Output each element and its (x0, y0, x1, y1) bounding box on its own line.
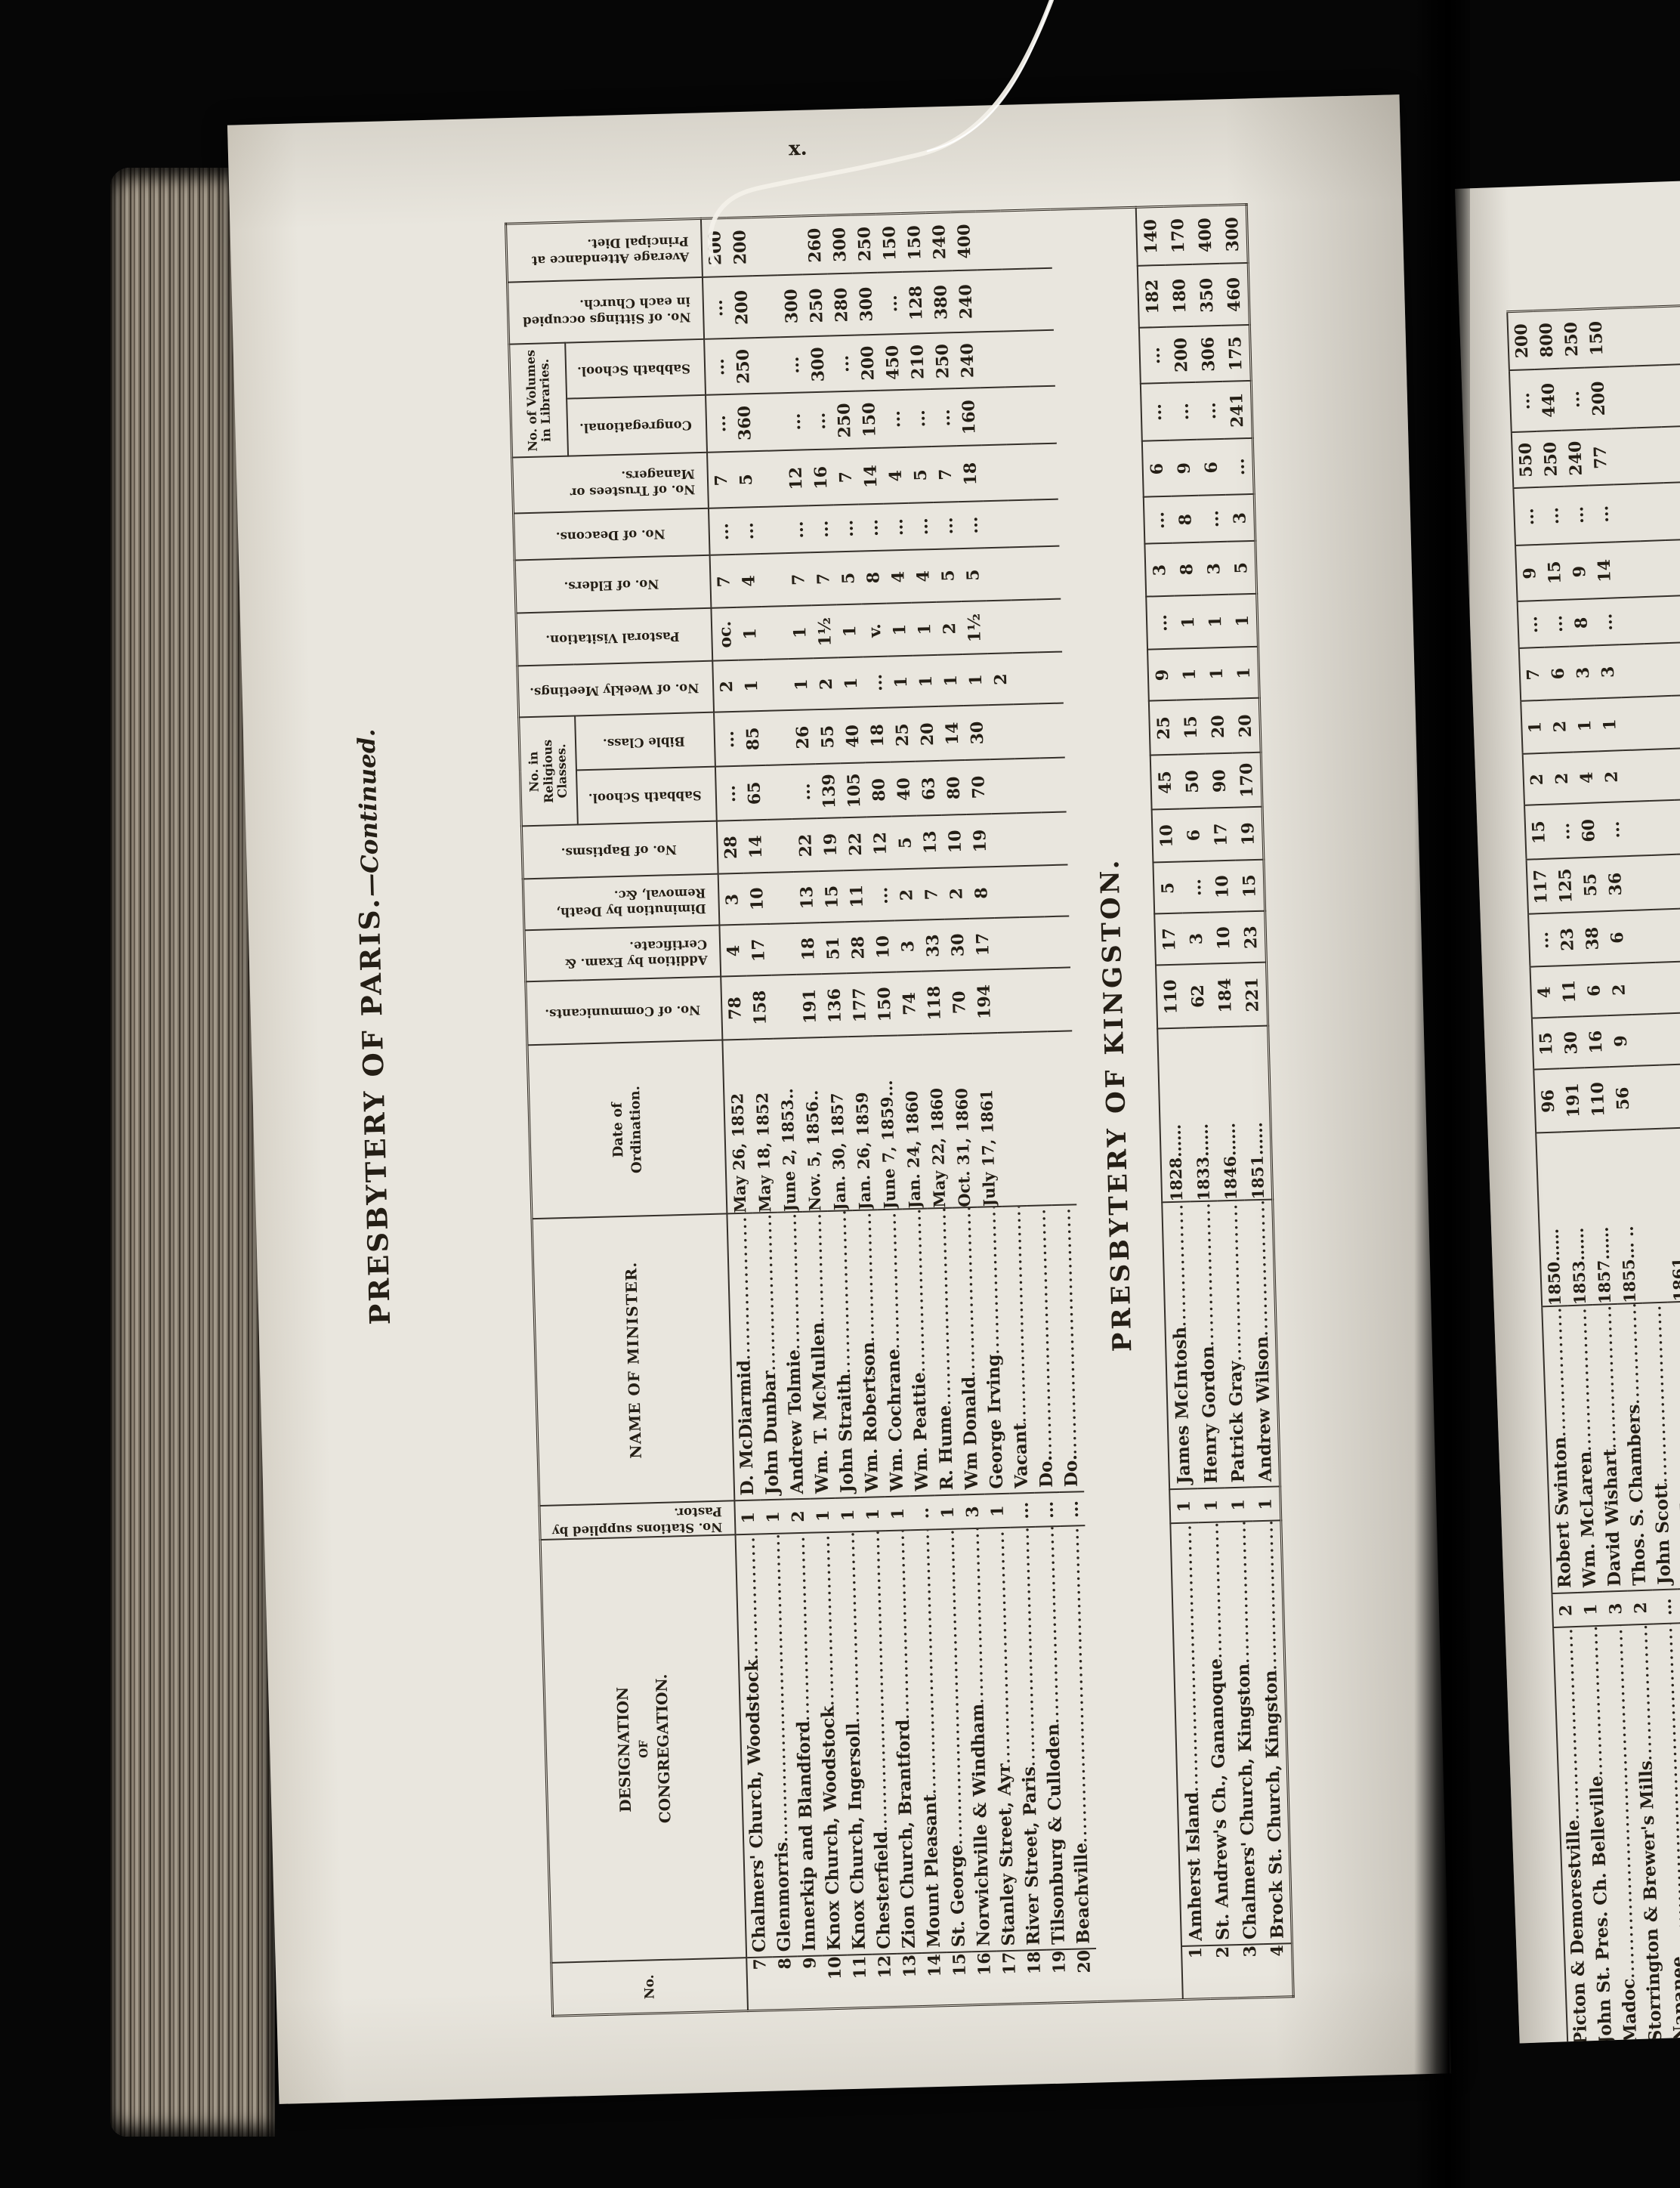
cell-diminution: 7 (919, 868, 945, 920)
cell-trustees: 16 (808, 450, 834, 506)
cell-avg_attendance: 260 (801, 215, 828, 275)
cell-avg_attendance: 250 (1558, 309, 1585, 369)
column-header-weekly: No. of Weekly Meetings. (517, 661, 714, 718)
congregation-name-text: Glenmorris (771, 1842, 795, 1957)
cell-addition: 30 (1558, 1017, 1584, 1069)
congregation-name-text: Stanley Street, Ayr (994, 1763, 1019, 1951)
dotted-leader: ........................................… (1634, 1625, 1655, 1760)
cell-religious_ss (1015, 759, 1042, 814)
cell-baptisms (1629, 910, 1655, 963)
cell-stations: ... (1009, 1493, 1035, 1528)
cell-visitation: 1 (1174, 595, 1203, 649)
cell-religious_bc: 15 (1177, 700, 1206, 755)
cell-sittings: 250 (803, 274, 829, 337)
cell-stations: 1 (810, 1498, 835, 1533)
cell-diminution (993, 867, 1020, 919)
cell-trustees: 9 (1566, 543, 1593, 600)
cell-volumes_ss (1612, 428, 1639, 485)
cell-deacons: ... (809, 505, 835, 553)
column-header-religious-ss: Sabbath School. (576, 767, 717, 825)
cell-stations: ... (1034, 1493, 1060, 1528)
cell-addition (1657, 1013, 1680, 1065)
minister-name-text: George Irving (983, 1354, 1007, 1494)
column-header-label-avg_attendance: Average Attendance at Principal Diet. (516, 233, 689, 268)
cell-weekly: 1 (888, 656, 914, 708)
cell-visitation: ... (1146, 596, 1175, 650)
dotted-leader: ........................................… (891, 1531, 913, 1720)
cell-volumes_ss (1004, 331, 1030, 388)
cell-religious_bc: 25 (889, 707, 916, 762)
cell-volumes_cong: ... (931, 389, 957, 447)
dotted-leader: ........................................… (907, 1210, 928, 1372)
cell-visitation: 2 (936, 602, 962, 656)
cell-volumes_cong: ... (881, 390, 907, 448)
dotted-leader: ........................................… (857, 1211, 878, 1342)
cell-visitation: 1 (1571, 699, 1598, 753)
cell-volumes_cong: ... (1196, 382, 1224, 440)
cell-volumes_ss (1662, 426, 1680, 483)
cell-religious_bc: 30 (964, 706, 990, 761)
cell-stations: 1 (1169, 1489, 1198, 1524)
dotted-leader: ........................................… (1232, 1522, 1252, 1664)
cell-diminution: 2 (943, 867, 970, 919)
cell-baptisms: 38 (1579, 912, 1605, 966)
cell-addition: 23 (1237, 911, 1266, 963)
cell-trustees: 9 (1170, 440, 1199, 496)
column-header-deacons: No. of Deacons. (514, 508, 710, 561)
column-header-label-volumes-ss: Sabbath School. (577, 360, 690, 379)
dotted-leader: ........................................… (1007, 1207, 1029, 1423)
cell-deacons: ... (1199, 495, 1228, 542)
cell-religious_bc: 14 (939, 706, 965, 761)
dotted-leader: ........................................… (1057, 1206, 1080, 1455)
cell-addition: 18 (795, 923, 821, 975)
cell-avg_attendance: 300 (826, 215, 853, 274)
cell-diminution: 2 (894, 869, 920, 921)
dotted-leader: ........................................… (1178, 1524, 1201, 1792)
dotted-leader: ........................................… (1623, 1304, 1643, 1405)
cell-deacons: ... (709, 508, 736, 555)
cell-volumes_ss (979, 332, 1005, 388)
minister-name-text: R. Hume (934, 1405, 957, 1495)
cell-avg_attendance (777, 216, 803, 276)
rotated-table-area-right: 5Picton & Demorestville.................… (1455, 292, 1680, 2044)
dotted-leader: ........................................… (733, 1214, 753, 1360)
cell-avg_attendance (1001, 210, 1027, 270)
cell-sittings (977, 270, 1004, 332)
cell-volumes_cong: ... (1589, 485, 1616, 543)
dotted-leader: ........................................… (1197, 1202, 1217, 1346)
column-header-avg_attendance: Average Attendance at Principal Diet. (506, 218, 703, 283)
dotted-leader: ........................................… (990, 1528, 1013, 1763)
cell-religious_bc (1014, 704, 1040, 759)
cell-addition (1632, 1014, 1659, 1066)
dotted-leader: ........................................… (1169, 1203, 1189, 1327)
cell-volumes_ss (755, 338, 781, 394)
cell-communicants: 191 (796, 975, 823, 1039)
cell-diminution (1630, 963, 1657, 1015)
cell-religious_ss: 63 (916, 761, 942, 816)
minister-name-text: Wm. McLaren (1575, 1451, 1600, 1592)
dotted-leader: ........................................… (1032, 1207, 1055, 1456)
cell-diminution: 8 (968, 867, 995, 919)
cell-avg_attendance (752, 217, 778, 277)
congregation-name-text: Amherst Island (1181, 1791, 1206, 1945)
cell-deacons: ... (884, 503, 910, 551)
cell-diminution: 4 (1530, 966, 1558, 1018)
cell-religious_bc: 85 (740, 711, 766, 766)
cell-baptisms: 10 (942, 814, 968, 868)
cell-elders (984, 548, 1011, 601)
cell-visitation (986, 601, 1012, 654)
cell-volumes_cong: 160 (956, 388, 982, 447)
cell-deacons: ... (1543, 600, 1570, 647)
cell-avg_attendance: 240 (926, 212, 953, 272)
cell-volumes_ss: 240 (954, 332, 981, 389)
cell-religious_ss: 105 (841, 763, 867, 818)
cell-avg_attendance: 140 (1136, 206, 1166, 266)
cell-deacons: ... (1144, 496, 1173, 544)
cell-volumes_ss: 306 (1194, 326, 1223, 382)
cell-volumes_ss: 250 (730, 338, 756, 395)
cell-sittings: 180 (1166, 264, 1194, 327)
cell-religious_bc: 60 (1575, 803, 1601, 858)
cell-deacons: ... (784, 506, 811, 554)
minister-name-text: Vacant (1010, 1423, 1032, 1494)
minister-name-text: Wm Donald (959, 1376, 982, 1494)
congregation-name-text: Mount Pleasant (920, 1794, 944, 1952)
cell-deacons: 8 (1172, 496, 1200, 543)
cell-religious_ss: 70 (965, 760, 992, 815)
cell-date: 1846...... (1212, 1027, 1244, 1201)
column-header-elders: No. of Elders. (514, 555, 711, 613)
cell-stations: 1 (760, 1500, 786, 1534)
cell-baptisms (1042, 812, 1068, 866)
cell-trustees: 7 (832, 449, 859, 505)
cell-religious_bc (1625, 801, 1651, 856)
column-header-volumes-ss: Sabbath School. (565, 339, 706, 399)
cell-trustees: 6 (1197, 439, 1226, 496)
minister-name-flex: Henry Gordon............................… (1194, 1202, 1221, 1488)
cell-volumes_cong: ... (806, 392, 832, 450)
cell-avg_attendance (1607, 307, 1635, 367)
column-header-label-addition: Addition by Exam. & Certificate. (535, 936, 708, 972)
cell-communicants: 74 (896, 972, 922, 1036)
minister-name-text: John Straith (834, 1374, 857, 1498)
cell-weekly: 2 (987, 654, 1014, 706)
cell-no: 20 (1071, 1948, 1098, 2002)
cell-religious_ss: 55 (1577, 858, 1604, 913)
congregation-name-text: Norwichville & Windham (968, 1703, 995, 1951)
cell-trustees (1007, 444, 1033, 501)
cell-deacons: ... (909, 502, 935, 550)
cell-visitation: 1 (737, 607, 763, 660)
rotated-table-area-left: PRESBYTERY OF PARIS.—Continued. No.DESIG… (325, 204, 1354, 2022)
cell-diminution: 15 (819, 871, 845, 923)
cell-volumes_cong (1614, 484, 1641, 542)
column-header-trustees: No. of Trustees or Managers. (512, 453, 709, 514)
cell-addition: 30 (944, 919, 971, 971)
column-header-label-deacons: No. of Deacons. (555, 525, 665, 543)
column-header-stations: No. Stations supplied by Pastor. (539, 1501, 736, 1541)
minister-name-text: Andrew Tolmie (783, 1349, 808, 1499)
cell-elders (1009, 547, 1036, 601)
cell-communicants (996, 969, 1022, 1034)
cell-volumes_cong: 150 (856, 391, 882, 449)
cell-addition (770, 923, 796, 975)
cell-avg_attendance (1026, 209, 1052, 269)
cell-communicants: 158 (746, 975, 773, 1040)
minister-name-text: Wm. T. McMullen (808, 1322, 832, 1498)
cell-avg_attendance: 150 (876, 213, 903, 273)
cell-sittings: ... (1560, 368, 1587, 431)
cell-religious_bc (1650, 800, 1676, 855)
cell-weekly: 2 (1549, 753, 1575, 805)
cell-volumes_ss (1029, 330, 1055, 387)
minister-name-text: Wm. Peattie (909, 1372, 932, 1496)
cell-volumes_cong: ... (781, 393, 808, 451)
cell-weekly: 1 (913, 655, 939, 707)
cell-stations: 1 (860, 1497, 885, 1532)
cell-religious_ss: 90 (1206, 753, 1234, 808)
cell-stations: 1 (885, 1497, 910, 1531)
cell-elders (761, 554, 787, 607)
column-header-diminution: Diminution by Death, Removal, &c. (523, 874, 719, 931)
cell-addition: 3 (894, 920, 921, 972)
right-table-mount: 5Picton & Demorestville.................… (1506, 307, 1680, 2044)
column-header-religious-bc: Bible Class. (575, 712, 715, 771)
cell-volumes_ss: 550 (1512, 431, 1539, 488)
cell-elders: 3 (1144, 543, 1174, 597)
cell-deacons (1008, 500, 1035, 548)
cell-addition: 17 (1154, 913, 1184, 966)
cell-communicants (1659, 1065, 1680, 1129)
cell-communicants: 110 (1156, 965, 1185, 1029)
cell-no: 2 (1209, 1945, 1238, 1999)
cell-communicants: 221 (1238, 963, 1268, 1027)
cell-religious_ss: 117 (1527, 859, 1554, 914)
table-body: 7Chalmers' Church, Woodstock............… (701, 204, 1293, 2010)
cell-avg_attendance: 250 (851, 214, 878, 273)
cell-elders: 8 (860, 551, 887, 604)
cell-diminution (1018, 866, 1045, 918)
cell-sittings (753, 276, 780, 338)
cell-weekly (1648, 749, 1675, 801)
cell-sittings: 350 (1193, 264, 1221, 326)
column-header-label-elders: No. of Elders. (564, 576, 659, 594)
cell-volumes_cong: ... (706, 394, 733, 453)
cell-no: 11 (847, 1955, 873, 2008)
cell-avg_attendance: 170 (1164, 206, 1193, 265)
cell-diminution: 5 (1153, 862, 1182, 914)
cell-volumes_cong (1030, 386, 1057, 444)
cell-religious_ss: 80 (940, 760, 967, 815)
cell-trustees: 14 (857, 448, 884, 505)
cell-volumes_cong (1638, 484, 1666, 542)
cell-diminution: 3 (718, 873, 746, 926)
cell-diminution: ... (1181, 861, 1209, 913)
cell-addition: 17 (969, 919, 996, 971)
dotted-leader: ........................................… (1040, 1528, 1062, 1724)
cell-stations: 1 (934, 1495, 960, 1530)
cell-date: 1828...... (1157, 1028, 1190, 1203)
right-page: 5Picton & Demorestville.................… (1455, 178, 1680, 2044)
congregation-name-text: St. Andrew's Ch., Gananoque (1206, 1658, 1234, 1945)
dotted-leader: ........................................… (1598, 1306, 1620, 1449)
cell-deacons (1643, 597, 1669, 644)
minister-name-text: Wm. Robertson (858, 1342, 882, 1497)
cell-stations: 1 (1252, 1487, 1281, 1522)
column-header-baptisms: No. of Baptisms. (521, 821, 718, 879)
cell-religious_ss: 50 (1178, 754, 1207, 809)
cell-avg_attendance: 400 (1191, 205, 1220, 264)
cell-weekly: 2 (712, 660, 740, 712)
cell-volumes_ss: 77 (1587, 429, 1614, 486)
cell-trustees: 7 (707, 452, 734, 508)
congregation-name-text: Tilsonburg & Culloden (1042, 1723, 1069, 1949)
dotted-leader: ........................................… (1205, 1523, 1225, 1658)
cell-visitation (1011, 600, 1037, 654)
cell-weekly: 1 (1230, 647, 1259, 699)
cell-religious_bc: ... (1550, 804, 1577, 859)
cell-trustees (982, 445, 1008, 502)
cell-diminution: 13 (794, 872, 820, 924)
cell-trustees (1666, 539, 1680, 596)
congregation-name-text: Innerkip and Blandford (793, 1720, 820, 1955)
cell-volumes_ss: ... (829, 335, 856, 392)
book-scan-photo: x. PRESBYTERY OF PARIS.—Continued. No.DE… (0, 0, 1680, 2188)
cell-baptisms: 19 (817, 818, 844, 872)
cell-diminution: 11 (844, 870, 870, 922)
cell-stations: ... (1652, 1590, 1678, 1624)
cell-addition: 17 (745, 924, 771, 976)
cell-stations: 4 (1677, 1589, 1680, 1624)
minister-name-text: Do. (1061, 1454, 1082, 1492)
cell-stations: 1 (984, 1494, 1010, 1528)
column-header-label-diminution: Diminution by Death, Removal, &c. (533, 885, 706, 920)
cell-elders: 3 (1200, 542, 1228, 595)
cell-baptisms (992, 814, 1018, 867)
cell-communicants (771, 975, 798, 1039)
cell-religious_bc: 18 (864, 708, 891, 763)
cell-diminution: 15 (1235, 860, 1265, 912)
left-table-mount: No.DESIGNATIONOFCONGREGATION.No. Station… (505, 206, 1295, 2017)
cell-volumes_cong: ... (1539, 487, 1566, 545)
cell-diminution: 11 (1555, 966, 1582, 1018)
cell-baptisms: 23 (1554, 913, 1580, 966)
cell-no: 12 (872, 1954, 898, 2007)
column-header-visitation: Pastoral Visitation. (516, 608, 712, 666)
cell-volumes_cong: 360 (731, 394, 758, 453)
cell-volumes_cong: ... (1513, 487, 1541, 545)
cell-deacons (1618, 598, 1644, 645)
cell-trustees: 5 (733, 452, 759, 508)
cell-volumes_cong: ... (1141, 383, 1170, 441)
cell-communicants: 118 (921, 971, 947, 1035)
cell-visitation (761, 607, 788, 660)
cell-avg_attendance: 150 (1583, 308, 1610, 368)
congregation-name-text: Napanee (1667, 1956, 1680, 2044)
dotted-leader: ........................................… (882, 1210, 903, 1349)
cell-baptisms: 22 (842, 817, 869, 871)
cell-weekly: 1 (1175, 648, 1204, 700)
cell-visitation: v. (861, 604, 888, 657)
cell-visitation: 1 (1521, 700, 1548, 754)
cell-deacons: 3 (1226, 494, 1255, 542)
cell-religious_bc (764, 711, 791, 766)
cell-religious_bc (1039, 703, 1065, 759)
dotted-leader: ........................................… (817, 1533, 838, 1706)
cell-avg_attendance: 800 (1533, 310, 1560, 369)
cell-diminution (1655, 962, 1680, 1014)
cell-baptisms (767, 820, 794, 873)
cell-religious_bc: 25 (1149, 700, 1178, 756)
cell-elders: 4 (910, 549, 937, 603)
cell-religious_ss: 170 (1233, 753, 1262, 808)
cell-volumes_ss: 250 (1537, 431, 1564, 487)
cell-sittings: 380 (928, 271, 954, 334)
cell-sittings: ... (878, 272, 904, 335)
cell-baptisms: 12 (867, 817, 894, 870)
cell-religious_ss (766, 765, 792, 820)
cell-elders: 4 (736, 554, 762, 607)
cell-volumes_ss: 200 (854, 335, 881, 391)
cell-communicants: 150 (871, 972, 897, 1037)
cell-religious_ss (990, 759, 1017, 814)
cell-trustees: 5 (907, 447, 934, 503)
cell-deacons: ... (959, 502, 985, 549)
column-header-label-trustees: No. of Trustees or Managers. (523, 465, 696, 501)
cell-diminution: ... (869, 870, 895, 922)
cell-date: 1851...... (1240, 1026, 1273, 1201)
cell-addition: 15 (1532, 1018, 1559, 1070)
cell-diminution (1042, 865, 1069, 917)
minister-name-text: Patrick Gray (1224, 1361, 1248, 1488)
minister-name-flex: Patrick Gray............................… (1221, 1201, 1249, 1488)
cell-elders: 8 (1172, 542, 1201, 596)
cell-volumes_ss: ... (780, 337, 806, 394)
cell-weekly: 1 (1203, 647, 1231, 700)
cell-visitation: oc. (711, 607, 738, 661)
congregation-name-text: Knox Church, Ingersoll (843, 1723, 869, 1955)
cell-addition (1044, 916, 1070, 969)
cell-elders: 7 (786, 553, 812, 607)
cell-sittings: 200 (1585, 367, 1612, 430)
cell-visitation: 1½ (811, 605, 838, 659)
cell-religious_bc: 55 (814, 709, 841, 765)
cell-trustees: 6 (1142, 440, 1172, 497)
cell-trustees (1641, 541, 1668, 598)
cell-weekly: 9 (1147, 649, 1177, 701)
dotted-leader: ........................................… (1648, 1303, 1670, 1483)
column-header-minister: NAME OF MINISTER. (532, 1214, 734, 1507)
cell-deacons (759, 507, 786, 555)
cell-deacons (1033, 499, 1060, 547)
column-header-label-volumes-cong: Congregational. (579, 416, 691, 435)
congregation-name-text: Chalmers' Church, Kingston (1233, 1663, 1261, 1944)
cell-trustees (1032, 443, 1058, 500)
cell-religious_bc: 40 (839, 709, 866, 764)
cell-visitation (1621, 697, 1648, 751)
cell-elders: 5 (959, 549, 986, 602)
cell-addition: 4 (719, 925, 746, 977)
congregation-name-text: River Street, Paris (1019, 1766, 1044, 1950)
dotted-leader: ........................................… (1548, 1307, 1569, 1437)
cell-addition: 16 (1583, 1016, 1609, 1068)
cell-visitation: 1 (1596, 698, 1623, 752)
cell-avg_attendance (1657, 306, 1680, 366)
cell-date: 1833...... (1185, 1028, 1217, 1202)
